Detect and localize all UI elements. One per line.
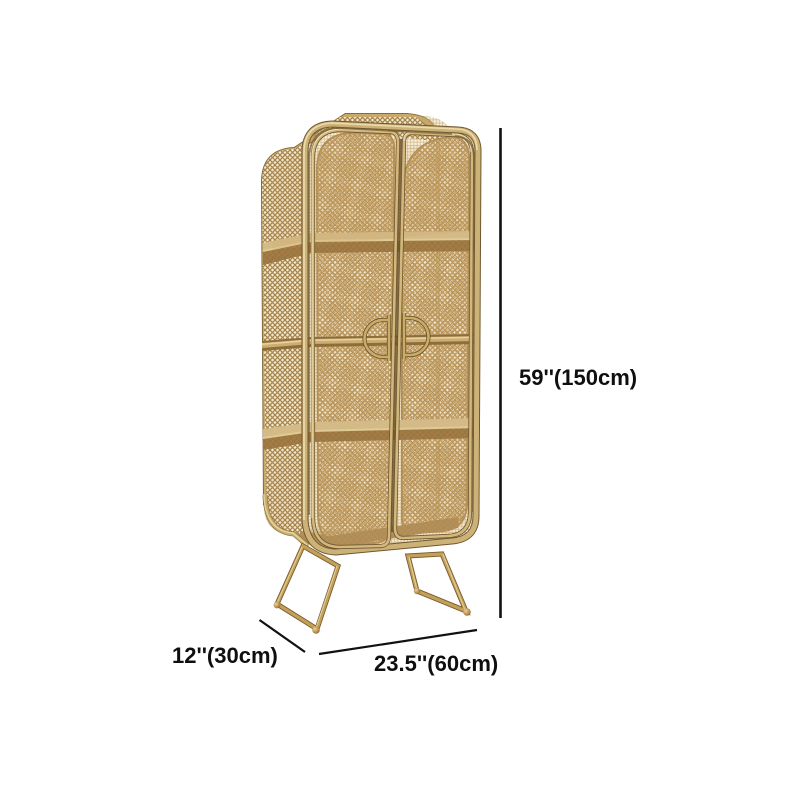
svg-text:23.5''(60cm): 23.5''(60cm) (374, 651, 498, 676)
svg-text:12''(30cm): 12''(30cm) (172, 643, 278, 668)
svg-text:59''(150cm): 59''(150cm) (519, 365, 637, 390)
